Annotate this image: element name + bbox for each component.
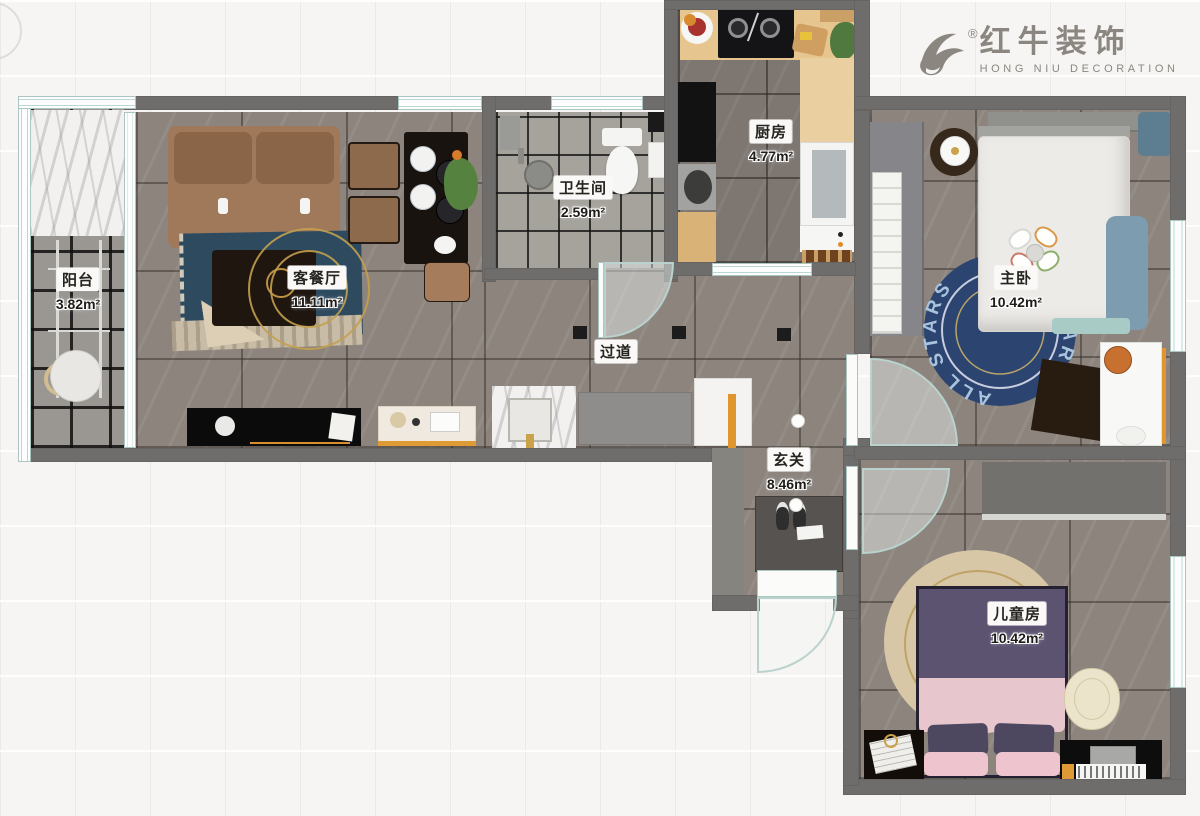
bathroom-window[interactable] <box>551 96 643 110</box>
wall <box>484 268 600 280</box>
kids-window[interactable] <box>1170 556 1186 688</box>
wall <box>854 110 870 354</box>
faucet <box>526 434 534 448</box>
room-name: 主卧 <box>995 266 1037 289</box>
sofa-remote <box>300 198 310 214</box>
wall <box>712 595 760 611</box>
entry-door-swing[interactable] <box>757 597 837 673</box>
kids-pillow-pink <box>996 752 1060 776</box>
basketball <box>1104 346 1132 374</box>
logo-text: 红牛装饰 HONG NIU DECORATION <box>980 24 1179 75</box>
room-area: 3.82m² <box>56 296 100 312</box>
balcony-window[interactable] <box>18 96 31 462</box>
room-label-bathroom[interactable]: 卫生间 2.59m² <box>554 176 612 220</box>
bowl <box>434 236 456 254</box>
registered-mark: ® <box>968 26 978 41</box>
room-name: 客餐厅 <box>288 266 346 289</box>
wall <box>664 0 868 10</box>
spice-rack <box>820 8 854 22</box>
floorplan-canvas: ALL STARS ALL STARS <box>0 0 1200 816</box>
room-name: 玄关 <box>768 448 810 471</box>
entry-door-leaf[interactable] <box>757 570 837 597</box>
kids-door-leaf[interactable] <box>846 466 858 550</box>
kitchen-base-cabinet[interactable] <box>678 212 716 262</box>
corner-circle-decoration <box>0 2 22 60</box>
kitchen-door-track[interactable] <box>712 263 812 276</box>
lamp-center <box>951 147 959 155</box>
burner <box>728 18 748 38</box>
living-window[interactable] <box>398 96 482 110</box>
appliance-door <box>684 170 712 204</box>
room-area: 8.46m² <box>767 476 811 492</box>
side-table-accent <box>378 441 476 446</box>
room-label-kids[interactable]: 儿童房 10.42m² <box>988 602 1046 646</box>
ceiling-light[interactable] <box>672 326 686 339</box>
drawer-knob <box>838 242 843 247</box>
dinner-plate <box>410 184 436 210</box>
dining-chair[interactable] <box>348 142 400 190</box>
blue-throw <box>1106 216 1148 330</box>
side-table-plate <box>390 412 406 428</box>
bath-shelf[interactable] <box>500 116 520 150</box>
room-label-entry[interactable]: 玄关 8.46m² <box>767 448 811 492</box>
bull-icon <box>912 24 974 82</box>
room-name: 阳台 <box>57 268 99 291</box>
shower-arm <box>518 148 524 164</box>
room-label-kitchen[interactable]: 厨房 4.77m² <box>749 120 793 164</box>
wall <box>482 96 496 282</box>
drying-rack-bar <box>48 330 110 332</box>
room-label-master[interactable]: 主卧 10.42m² <box>990 266 1042 310</box>
barcode-book <box>1076 764 1146 780</box>
room-area: 10.42m² <box>988 630 1046 646</box>
drawer-knob <box>838 232 843 237</box>
wall <box>664 0 678 282</box>
wall <box>808 262 856 276</box>
fridge-door <box>812 150 846 218</box>
balcony-window[interactable] <box>18 96 136 109</box>
cable-accent <box>250 442 350 444</box>
gold-ring-decor <box>884 734 898 748</box>
laundry-basket[interactable] <box>1138 112 1172 156</box>
spot-light <box>789 498 803 512</box>
kids-chair-seat <box>1074 678 1110 720</box>
wall <box>854 0 870 106</box>
book-stack[interactable] <box>872 172 902 334</box>
room-area: 10.42m² <box>990 294 1042 310</box>
entry-wall-cabinet <box>712 448 744 598</box>
master-door-leaf[interactable] <box>846 354 858 446</box>
master-window[interactable] <box>1170 220 1186 352</box>
kitchen-pantry[interactable] <box>800 58 854 142</box>
dining-bench[interactable] <box>424 262 470 302</box>
dinner-plate <box>410 146 436 172</box>
room-label-hallway[interactable]: 过道 <box>595 340 637 363</box>
room-area: 11.11m² <box>288 294 346 310</box>
plant[interactable] <box>444 158 478 210</box>
desk-accent <box>1162 348 1166 444</box>
kitchen-tall-cabinet[interactable] <box>678 82 716 162</box>
shower-head[interactable] <box>524 160 554 190</box>
teal-blanket-edge <box>1052 318 1130 334</box>
hall-cabinet[interactable] <box>578 392 692 445</box>
room-name: 过道 <box>595 340 637 363</box>
room-area: 4.77m² <box>749 148 793 164</box>
door-card <box>796 525 823 540</box>
wall <box>854 96 1186 110</box>
food-item <box>800 32 812 40</box>
wall <box>18 448 712 462</box>
balcony-chair[interactable] <box>50 350 102 402</box>
desk-stool[interactable] <box>1116 426 1146 446</box>
room-name: 厨房 <box>750 120 792 143</box>
spot-light <box>791 414 805 428</box>
sofa-remote <box>218 198 228 214</box>
decor-plate <box>215 416 235 436</box>
burner <box>760 18 780 38</box>
shoe <box>776 502 789 530</box>
room-name: 卫生间 <box>554 176 612 199</box>
room-area: 2.59m² <box>554 204 612 220</box>
brand-subtitle: HONG NIU DECORATION <box>980 63 1179 75</box>
brand-logo: ® 红牛装饰 HONG NIU DECORATION <box>912 24 1179 82</box>
shoe-cabinet[interactable] <box>694 378 752 446</box>
plant-flower <box>452 150 462 160</box>
sofa-cushion <box>256 132 334 184</box>
room-name: 儿童房 <box>988 602 1046 625</box>
kids-pillow-pink <box>924 752 988 776</box>
side-table-pad <box>430 412 460 432</box>
toilet-tank <box>602 128 642 146</box>
room-label-living[interactable]: 客餐厅 11.11m² <box>288 266 346 310</box>
fruit <box>684 14 696 26</box>
kitchen-drawer-unit[interactable] <box>800 226 854 252</box>
side-table-cup <box>412 418 420 426</box>
fan-hub-icon <box>1026 244 1044 262</box>
kids-wardrobe[interactable] <box>982 462 1166 520</box>
balcony-marble-cabinet <box>31 110 124 236</box>
wall <box>854 446 1186 460</box>
dining-chair[interactable] <box>348 196 400 244</box>
ceiling-light[interactable] <box>573 326 587 339</box>
wall <box>843 779 1186 795</box>
room-label-balcony[interactable]: 阳台 3.82m² <box>56 268 100 312</box>
brand-name: 红牛装饰 <box>980 24 1179 60</box>
sofa-cushion <box>174 132 252 184</box>
magazine <box>328 412 355 441</box>
kids-wardrobe-rail <box>982 514 1166 520</box>
ceiling-light[interactable] <box>777 328 791 341</box>
desk-book-accent <box>1062 764 1074 780</box>
balcony-slider-track[interactable] <box>124 112 136 448</box>
